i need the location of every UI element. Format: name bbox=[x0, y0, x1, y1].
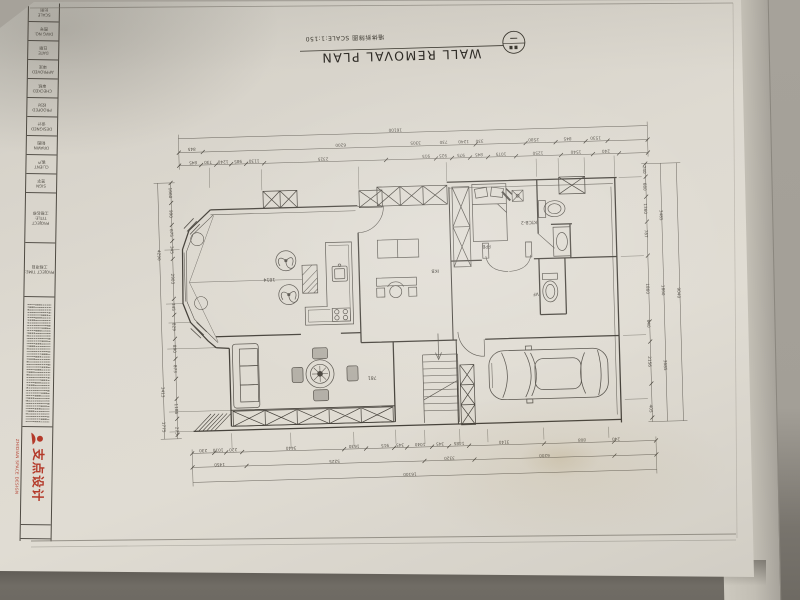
svg-text:3413: 3413 bbox=[160, 387, 165, 398]
svg-text:345: 345 bbox=[169, 246, 174, 254]
svg-text:1860: 1860 bbox=[645, 283, 650, 294]
drawing-number-bubble bbox=[503, 31, 526, 54]
svg-text:845: 845 bbox=[187, 147, 195, 152]
svg-text:1010: 1010 bbox=[212, 448, 223, 453]
svg-text:845: 845 bbox=[563, 136, 571, 141]
stove-icon bbox=[332, 308, 350, 321]
svg-text:3305: 3305 bbox=[410, 140, 421, 145]
svg-text:345: 345 bbox=[171, 303, 176, 311]
svg-text:4290: 4290 bbox=[157, 250, 162, 261]
dining-table bbox=[291, 347, 358, 402]
svg-text:3320: 3320 bbox=[444, 456, 455, 461]
bathroom-sink-icon bbox=[553, 227, 571, 256]
svg-text:16100: 16100 bbox=[388, 127, 402, 132]
svg-text:345: 345 bbox=[436, 441, 444, 446]
svg-text:1450: 1450 bbox=[214, 462, 225, 467]
dimension-numbers: 16100 845 6200 3305 730 1240 330 2580 84… bbox=[153, 120, 686, 484]
room-label: VF bbox=[533, 291, 539, 297]
svg-text:1240: 1240 bbox=[217, 159, 228, 164]
kitchen-counter bbox=[303, 242, 353, 325]
title-chinese-scale: 墙体拆除图 SCALE:1:150 bbox=[305, 33, 384, 43]
svg-text:845: 845 bbox=[189, 160, 197, 165]
svg-text:275: 275 bbox=[174, 427, 179, 435]
svg-text:1360: 1360 bbox=[643, 203, 648, 214]
svg-text:730: 730 bbox=[204, 160, 212, 165]
svg-text:1630: 1630 bbox=[348, 444, 359, 449]
svg-text:1860: 1860 bbox=[661, 285, 666, 296]
svg-text:1250: 1250 bbox=[532, 151, 543, 156]
stairs-direction-arrow bbox=[435, 333, 442, 359]
car bbox=[488, 344, 609, 404]
svg-text:925: 925 bbox=[439, 153, 447, 158]
svg-text:405: 405 bbox=[649, 405, 654, 413]
svg-text:6200: 6200 bbox=[335, 143, 346, 148]
svg-text:990: 990 bbox=[168, 210, 173, 218]
title-english: WALL REMOVAL PLAN bbox=[321, 46, 482, 65]
svg-text:1530: 1530 bbox=[590, 135, 601, 140]
svg-text:890: 890 bbox=[172, 345, 177, 353]
wardrobe bbox=[452, 187, 471, 267]
room-label: FPB bbox=[482, 243, 491, 249]
vent-icon bbox=[512, 190, 523, 201]
room-labels: 1814 781 IKB FPB KTCB-2 VF bbox=[262, 219, 541, 384]
svg-text:3685: 3685 bbox=[663, 360, 668, 371]
photo-of-blueprint: SCALE比例 DWG NO.图号 DATE日期 APPROVED审定 CHEC… bbox=[0, 0, 800, 600]
svg-text:680: 680 bbox=[642, 183, 647, 191]
svg-text:1075: 1075 bbox=[495, 152, 506, 157]
svg-text:808: 808 bbox=[578, 437, 586, 442]
walls bbox=[180, 177, 624, 434]
svg-text:1775: 1775 bbox=[161, 422, 166, 433]
svg-text:2325: 2325 bbox=[317, 157, 328, 162]
svg-text:1040: 1040 bbox=[414, 442, 425, 447]
svg-text:675: 675 bbox=[169, 229, 174, 237]
svg-text:220: 220 bbox=[229, 447, 237, 452]
svg-text:787: 787 bbox=[644, 230, 649, 238]
svg-text:2156: 2156 bbox=[647, 356, 652, 367]
desk-and-chair bbox=[376, 277, 417, 298]
door-swings bbox=[357, 201, 557, 359]
svg-text:330: 330 bbox=[475, 139, 483, 144]
room-label: KTCB-2 bbox=[521, 219, 537, 225]
room-label: IKB bbox=[431, 267, 439, 273]
svg-text:915: 915 bbox=[381, 443, 389, 448]
svg-text:3485: 3485 bbox=[659, 210, 664, 221]
sheet-frame bbox=[30, 3, 737, 547]
room-label: 1814 bbox=[263, 276, 275, 282]
svg-text:1660: 1660 bbox=[168, 188, 173, 199]
svg-text:1130: 1130 bbox=[248, 158, 259, 163]
stairs bbox=[422, 333, 459, 423]
drawing-title: 墙体拆除图 SCALE:1:150 WALL REMOVAL PLAN bbox=[300, 29, 526, 66]
svg-text:16100: 16100 bbox=[403, 472, 417, 477]
svg-text:985: 985 bbox=[234, 159, 242, 164]
svg-text:3440: 3440 bbox=[285, 446, 296, 451]
svg-text:1540: 1540 bbox=[570, 149, 581, 154]
svg-text:975: 975 bbox=[457, 153, 465, 158]
svg-text:640: 640 bbox=[646, 320, 651, 328]
svg-text:3140: 3140 bbox=[498, 440, 509, 445]
drawing-sheet: SCALE比例 DWG NO.图号 DATE日期 APPROVED审定 CHEC… bbox=[0, 0, 800, 600]
svg-text:2580: 2580 bbox=[528, 137, 539, 142]
svg-text:730: 730 bbox=[439, 140, 447, 145]
ceiling-fan-icon bbox=[279, 284, 300, 305]
room-label: 781 bbox=[368, 374, 377, 380]
svg-text:915: 915 bbox=[422, 154, 430, 159]
svg-text:6200: 6200 bbox=[539, 453, 550, 458]
svg-text:2903: 2903 bbox=[170, 273, 175, 284]
dining-chair bbox=[291, 347, 358, 402]
svg-text:240: 240 bbox=[602, 149, 610, 154]
hall-cabinet bbox=[377, 239, 418, 258]
svg-text:240: 240 bbox=[612, 436, 620, 441]
svg-text:873: 873 bbox=[173, 365, 178, 373]
svg-text:1485: 1485 bbox=[453, 441, 464, 446]
ceiling-fan-icon bbox=[276, 250, 297, 271]
svg-text:1240: 1240 bbox=[458, 139, 469, 144]
svg-text:345: 345 bbox=[396, 443, 404, 448]
svg-text:230: 230 bbox=[199, 448, 207, 453]
kitchen-island bbox=[302, 265, 318, 293]
svg-text:1186: 1186 bbox=[174, 403, 179, 414]
svg-text:845: 845 bbox=[475, 152, 483, 157]
removed-wall-markers bbox=[188, 176, 592, 432]
svg-text:5225: 5225 bbox=[329, 459, 340, 464]
floorplan-drawing: 墙体拆除图 SCALE:1:150 WALL REMOVAL PLAN bbox=[0, 0, 800, 600]
bed bbox=[472, 183, 514, 241]
svg-text:829: 829 bbox=[172, 323, 177, 331]
wc-toilet-icon bbox=[542, 273, 558, 302]
sofa bbox=[232, 344, 260, 409]
dimension-lines bbox=[152, 121, 689, 488]
bay-window bbox=[183, 212, 304, 343]
sink-icon bbox=[332, 266, 347, 281]
svg-text:9040: 9040 bbox=[676, 287, 681, 298]
toilet-icon bbox=[538, 200, 565, 218]
svg-text:240: 240 bbox=[642, 166, 647, 174]
